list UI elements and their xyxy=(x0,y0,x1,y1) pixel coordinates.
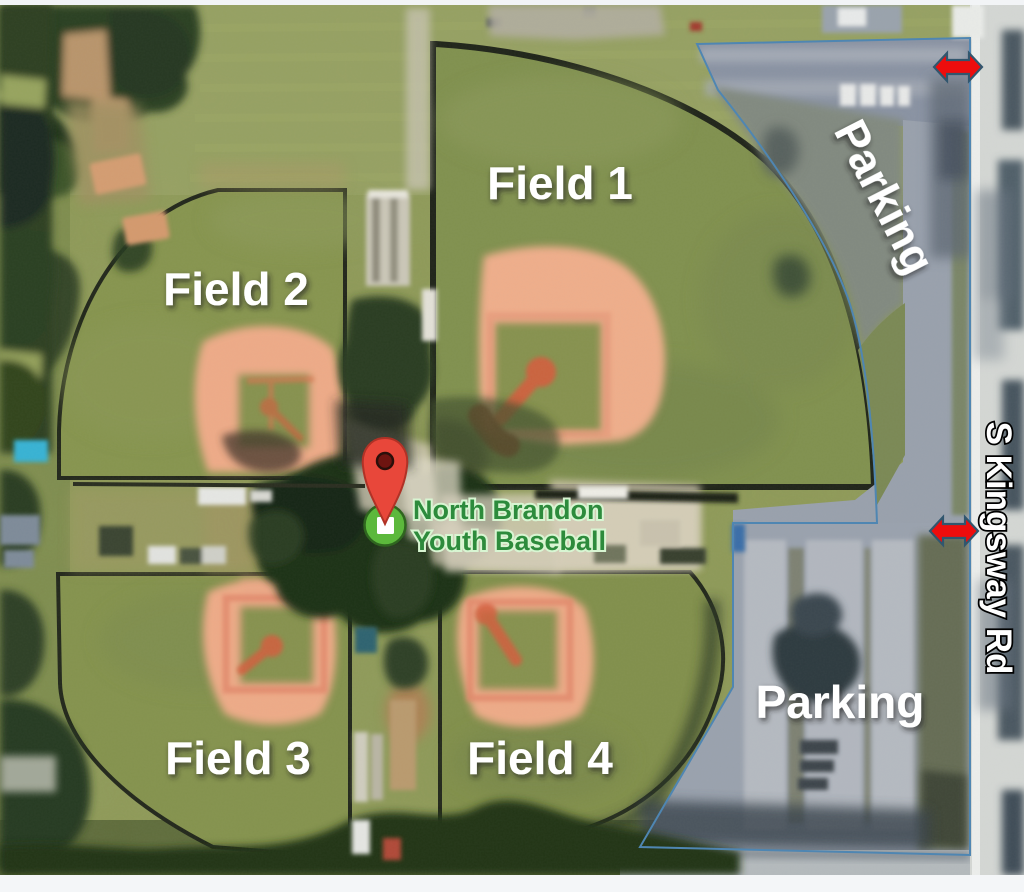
svg-text:North Brandon: North Brandon xyxy=(413,495,603,525)
svg-text:Field 4: Field 4 xyxy=(467,732,613,784)
svg-text:Youth Baseball: Youth Baseball xyxy=(413,526,606,556)
svg-text:S Kingsway Rd: S Kingsway Rd xyxy=(979,422,1018,675)
svg-text:Parking: Parking xyxy=(756,676,925,728)
svg-text:Field 3: Field 3 xyxy=(165,732,311,784)
svg-text:Field 1: Field 1 xyxy=(487,157,633,209)
svg-text:Field 2: Field 2 xyxy=(163,263,309,315)
